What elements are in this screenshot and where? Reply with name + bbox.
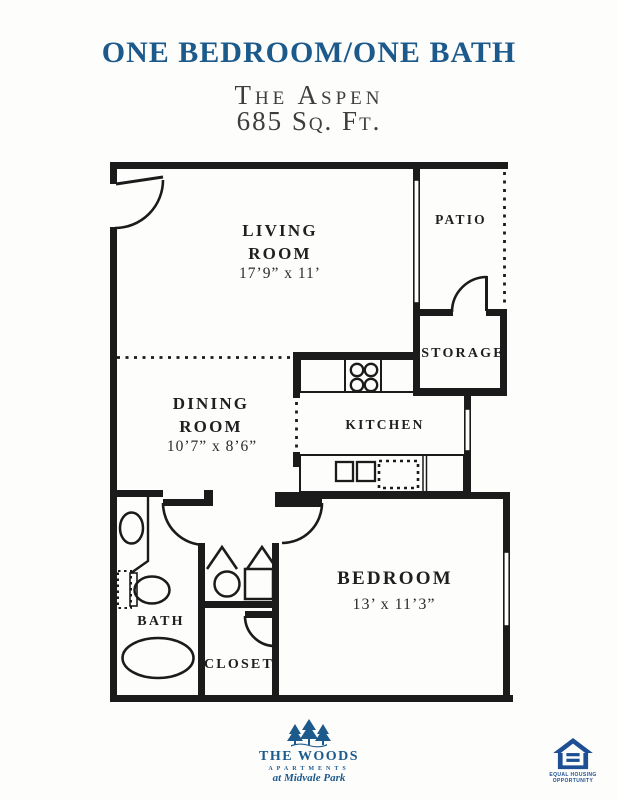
bath-door-arc [163, 503, 205, 545]
dining-room-label: ROOM [179, 417, 243, 436]
hvac-unit-icon [245, 569, 273, 599]
bathtub-icon [123, 638, 194, 678]
bedroom-label: BEDROOM [337, 568, 453, 589]
room-labels: LIVING ROOM 17’9” x 11’ PATIO STORAGE DI… [137, 212, 505, 672]
wall-segment [503, 492, 510, 553]
patio-sliding-door [414, 180, 419, 303]
wall-segment [198, 543, 205, 702]
kitchen-label: KITCHEN [345, 417, 424, 432]
storage-label: STORAGE [421, 346, 505, 361]
wall-segment [503, 625, 510, 702]
closet-label: CLOSET [204, 657, 274, 672]
wall-segment [110, 695, 513, 702]
closet-door-arc [245, 616, 275, 646]
bedroom-door-leaf [283, 499, 322, 507]
brand-name: THE WOODS [229, 749, 389, 765]
floorplan-drawing: LIVING ROOM 17’9” x 11’ PATIO STORAGE DI… [0, 0, 618, 800]
wall-segment [464, 450, 471, 497]
bathroom-sink-icon [135, 577, 170, 604]
equal-housing-logo: EQUAL HOUSING OPPORTUNITY [546, 737, 600, 784]
dishwasher-icon [379, 461, 418, 488]
bath-fixtures [118, 497, 194, 678]
floorplan-flyer: ONE BEDROOM/ONE BATH The Aspen 685 Sq. F… [0, 0, 618, 800]
bedroom-door-arc [282, 503, 322, 543]
water-heater-icon [215, 572, 240, 597]
closet-door-leaf [245, 611, 278, 618]
toilet-icon [120, 513, 143, 544]
brand-tagline: at Midvale Park [229, 772, 389, 784]
pine-trees-icon [279, 718, 339, 748]
wall-segment [464, 388, 471, 410]
bath-door-leaf [163, 499, 206, 506]
bath-linen-dotted [118, 571, 131, 608]
dining-room-label: DINING [173, 394, 250, 413]
wall-segment [110, 490, 163, 497]
bedroom-window [504, 552, 509, 626]
entry-door-arc [115, 180, 163, 228]
wall-segment [413, 388, 507, 396]
kitchen-double-sink-icon [336, 462, 375, 481]
stove-burners-icon [351, 364, 377, 391]
bath-label: BATH [137, 614, 184, 629]
wall-segment [110, 162, 508, 169]
kitchen-counter-divider [423, 455, 427, 492]
wall-segment [293, 352, 420, 359]
dining-room-dims: 10’7” x 8’6” [167, 438, 257, 455]
wall-segment [293, 352, 300, 398]
living-room-label: LIVING [242, 221, 318, 240]
living-room-label: ROOM [248, 244, 312, 263]
kitchen-window [465, 409, 470, 451]
wall-segment [293, 452, 300, 467]
bath-partition [131, 497, 148, 573]
storage-door-arc [452, 277, 487, 312]
bifold-doors-icon [207, 547, 237, 569]
wall-segment [198, 601, 279, 608]
utility-fixtures [215, 569, 274, 599]
wall-segment [110, 162, 117, 184]
wall-segment [275, 492, 510, 499]
wall-segment [413, 309, 453, 316]
brand-logo: THE WOODS APARTMENTS at Midvale Park [229, 718, 389, 784]
living-room-dims: 17’9” x 11’ [239, 265, 321, 282]
bedroom-dims: 13’ x 11’3” [353, 596, 436, 613]
equal-housing-text: OPPORTUNITY [546, 778, 600, 784]
entry-door-leaf [116, 177, 163, 184]
wall-segment [413, 162, 420, 181]
windows [414, 180, 509, 626]
wall-segment [275, 492, 283, 507]
equal-housing-house-icon [552, 737, 594, 771]
wall-segment [110, 227, 117, 702]
patio-label: PATIO [435, 212, 487, 227]
